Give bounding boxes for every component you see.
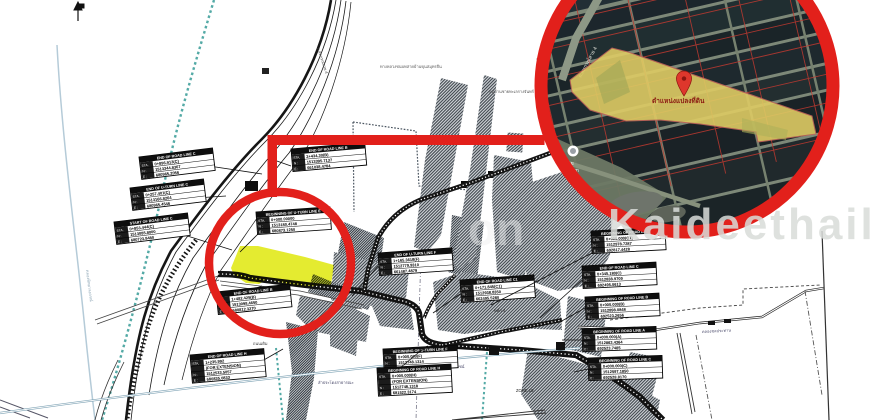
svg-text:STA.: STA.: [379, 375, 386, 379]
svg-text:STA.: STA.: [258, 218, 265, 222]
svg-text:STA.: STA.: [385, 356, 392, 360]
svg-text:STA.: STA.: [593, 238, 600, 242]
svg-text:E :: E :: [584, 347, 588, 351]
svg-text:STA.: STA.: [141, 163, 148, 168]
svg-text:N :: N :: [142, 169, 147, 173]
svg-text:STA.: STA.: [462, 286, 469, 290]
svg-text:ลำประโดงสาธารณะ: ลำประโดงสาธารณะ: [318, 380, 354, 385]
svg-text:E :: E :: [194, 378, 198, 382]
svg-text:E :: E :: [381, 271, 385, 275]
svg-text:E :: E :: [463, 298, 467, 302]
svg-text:E :: E :: [118, 239, 122, 243]
svg-text:E :: E :: [380, 392, 384, 396]
svg-text:E :: E :: [143, 174, 147, 178]
svg-text:ZONE 19: ZONE 19: [516, 388, 534, 393]
svg-text:Kaideethail: Kaideethail: [608, 200, 870, 249]
svg-text:E :: E :: [134, 205, 138, 209]
svg-text:ถนนเดิม: ถนนเดิม: [253, 341, 268, 346]
svg-text:N :: N :: [380, 386, 384, 390]
svg-text:E :: E :: [594, 249, 598, 253]
svg-text:N :: N :: [117, 234, 122, 238]
svg-text:E :: E :: [259, 230, 263, 234]
svg-text:STA.: STA.: [116, 228, 123, 233]
svg-text:N :: N :: [385, 361, 389, 365]
svg-text:N :: N :: [193, 373, 198, 377]
svg-text:STA.: STA.: [584, 336, 591, 340]
svg-text:N :: N :: [584, 278, 588, 282]
svg-text:692523.7485: 692523.7485: [597, 345, 621, 351]
svg-text:N :: N :: [590, 370, 594, 374]
svg-text:N :: N :: [380, 265, 384, 269]
svg-text:STA.: STA.: [132, 194, 139, 199]
svg-text:STA.: STA.: [590, 365, 597, 369]
svg-text:E :: E :: [588, 315, 592, 319]
svg-text:N :: N :: [593, 243, 597, 247]
svg-text:หลัก 4: หลัก 4: [494, 308, 506, 313]
svg-text:692528.8170: 692528.8170: [603, 374, 627, 380]
svg-text:on: on: [468, 203, 524, 255]
svg-text:STA.: STA.: [192, 361, 199, 366]
svg-text:N :: N :: [133, 200, 138, 204]
svg-text:STA.: STA.: [380, 259, 387, 263]
svg-text:STA.: STA.: [584, 273, 591, 277]
svg-text:E :: E :: [590, 376, 594, 380]
svg-text:N :: N :: [258, 224, 262, 228]
svg-text:E :: E :: [585, 284, 589, 288]
svg-text:N :: N :: [294, 161, 299, 165]
svg-text:N :: N :: [462, 292, 466, 296]
svg-text:E :: E :: [294, 167, 298, 171]
svg-text:STA.: STA.: [587, 304, 594, 308]
svg-text:N :: N :: [587, 309, 591, 313]
svg-text:STA.: STA.: [293, 155, 300, 160]
svg-text:N :: N :: [584, 341, 588, 345]
